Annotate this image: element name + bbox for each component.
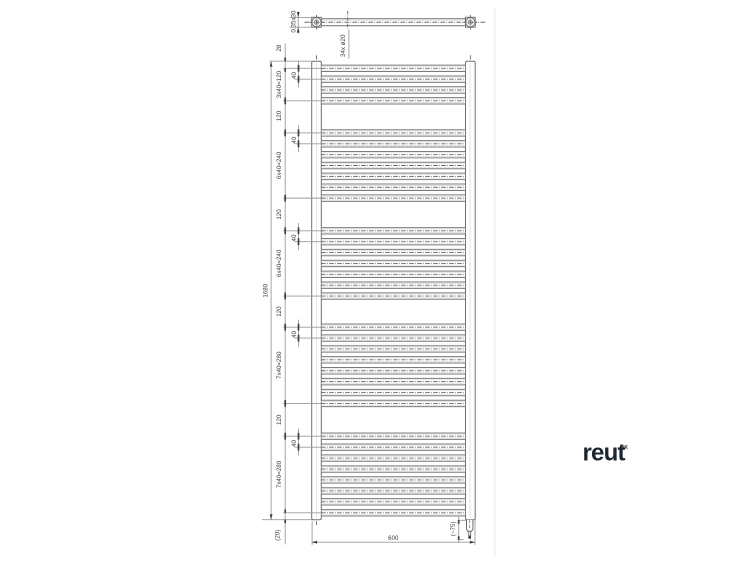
svg-text:7x40=280: 7x40=280 [276,460,283,488]
svg-text:120: 120 [276,110,283,121]
svg-text:40: 40 [291,136,298,143]
svg-text:0,35x30: 0,35x30 [291,10,298,33]
svg-text:1680: 1680 [263,283,270,297]
svg-text:DK: DK [621,445,629,451]
svg-text:120: 120 [276,414,283,425]
svg-text:120: 120 [276,209,283,220]
svg-text:(~75): (~75) [450,521,457,536]
svg-text:(20): (20) [275,530,282,541]
svg-text:40: 40 [291,234,298,241]
svg-text:reut: reut [583,440,626,467]
svg-text:40: 40 [291,72,298,79]
svg-text:34x ø20: 34x ø20 [340,34,347,57]
svg-text:120: 120 [276,306,283,317]
svg-text:40: 40 [291,439,298,446]
svg-text:40: 40 [291,330,298,337]
svg-text:6x40=240: 6x40=240 [276,151,283,179]
svg-text:7x40=280: 7x40=280 [276,351,283,379]
svg-text:600: 600 [388,535,399,542]
svg-text:3x40=120: 3x40=120 [276,70,283,98]
svg-text:28: 28 [276,44,283,51]
svg-text:6x40=240: 6x40=240 [276,249,283,277]
